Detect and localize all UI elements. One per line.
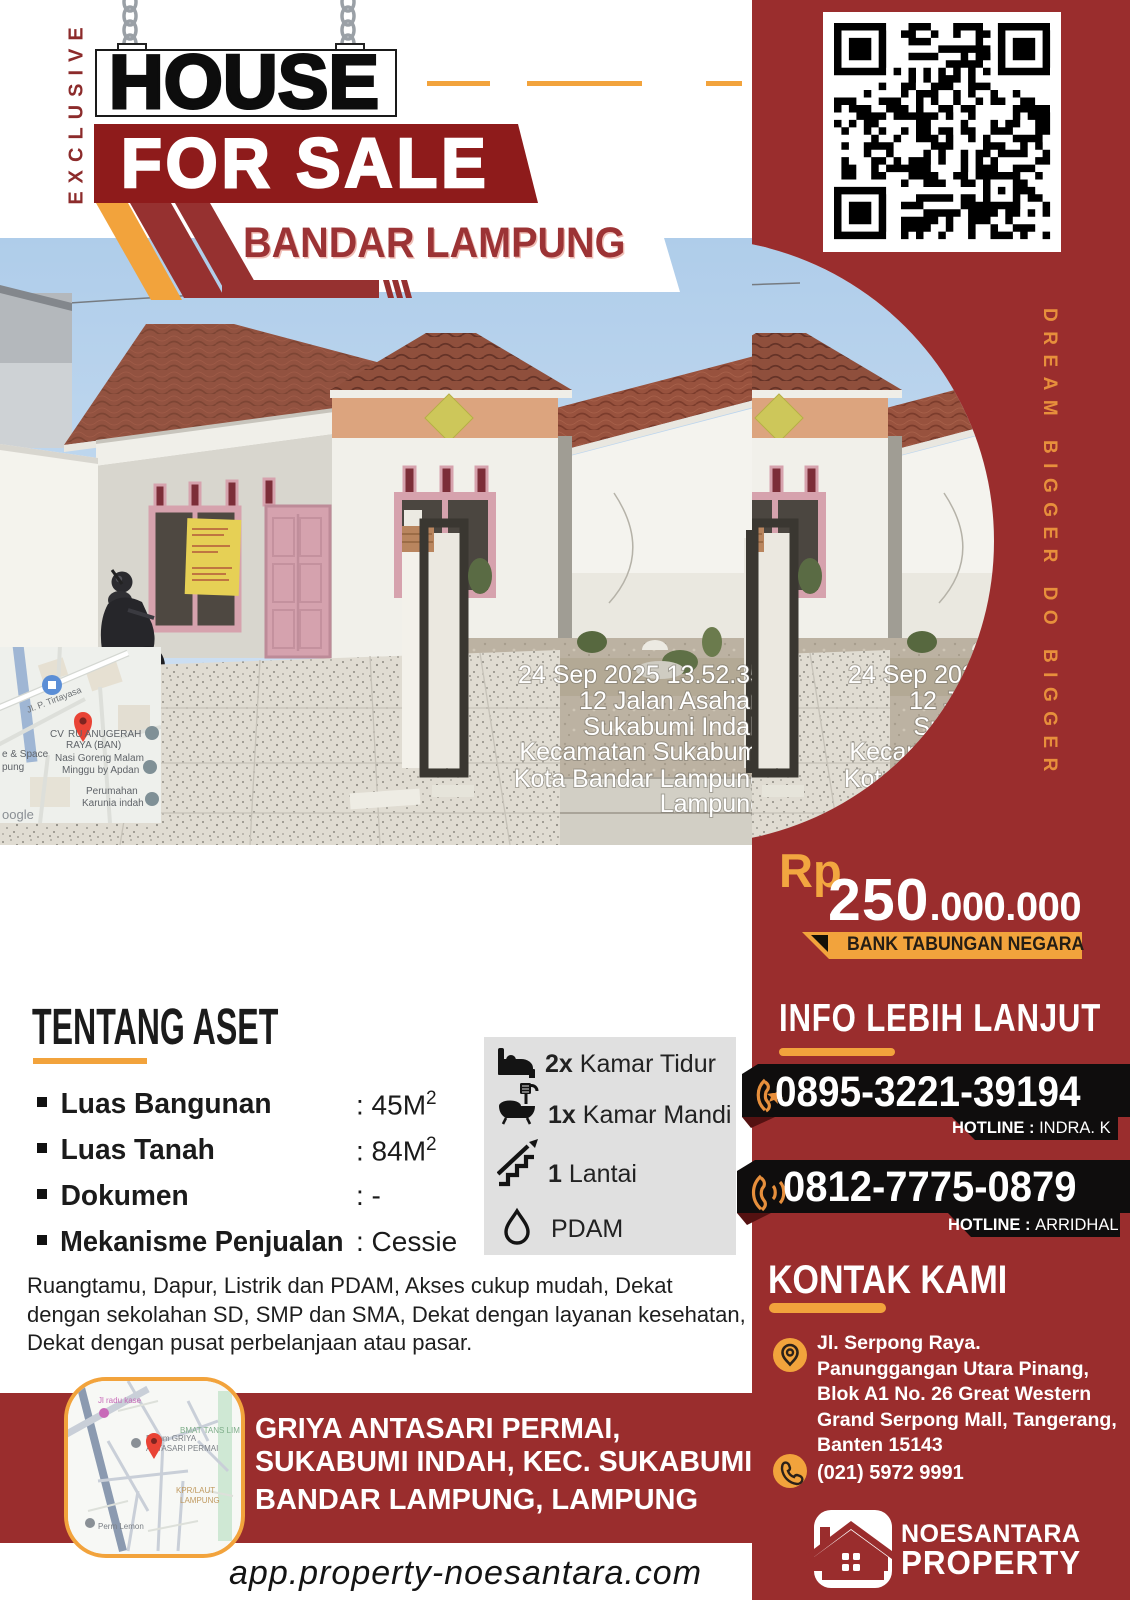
svg-text:12 Jalan Asahan: 12 Jalan Asahan xyxy=(579,687,752,715)
svg-text:24 Sep 2025 13.52.35: 24 Sep 2025 13.52.35 xyxy=(518,661,752,689)
svg-text:Kecamatan Sukabumi: Kecamatan Sukabumi xyxy=(519,738,752,766)
svg-text:Sukabumi Indah: Sukabumi Indah xyxy=(583,713,752,741)
svg-text:LAMPUNG: LAMPUNG xyxy=(180,1496,220,1505)
svg-text:Lampung: Lampung xyxy=(660,790,752,818)
svg-text:KPR/LAUT: KPR/LAUT xyxy=(176,1486,215,1495)
svg-text:Kota Bandar Lampung: Kota Bandar Lampung xyxy=(514,765,752,793)
svg-text:Jl radu kase: Jl radu kase xyxy=(98,1396,142,1405)
svg-text:Perm Lemon: Perm Lemon xyxy=(98,1522,144,1531)
svg-text:BMAT TANS LIM: BMAT TANS LIM xyxy=(180,1426,240,1435)
